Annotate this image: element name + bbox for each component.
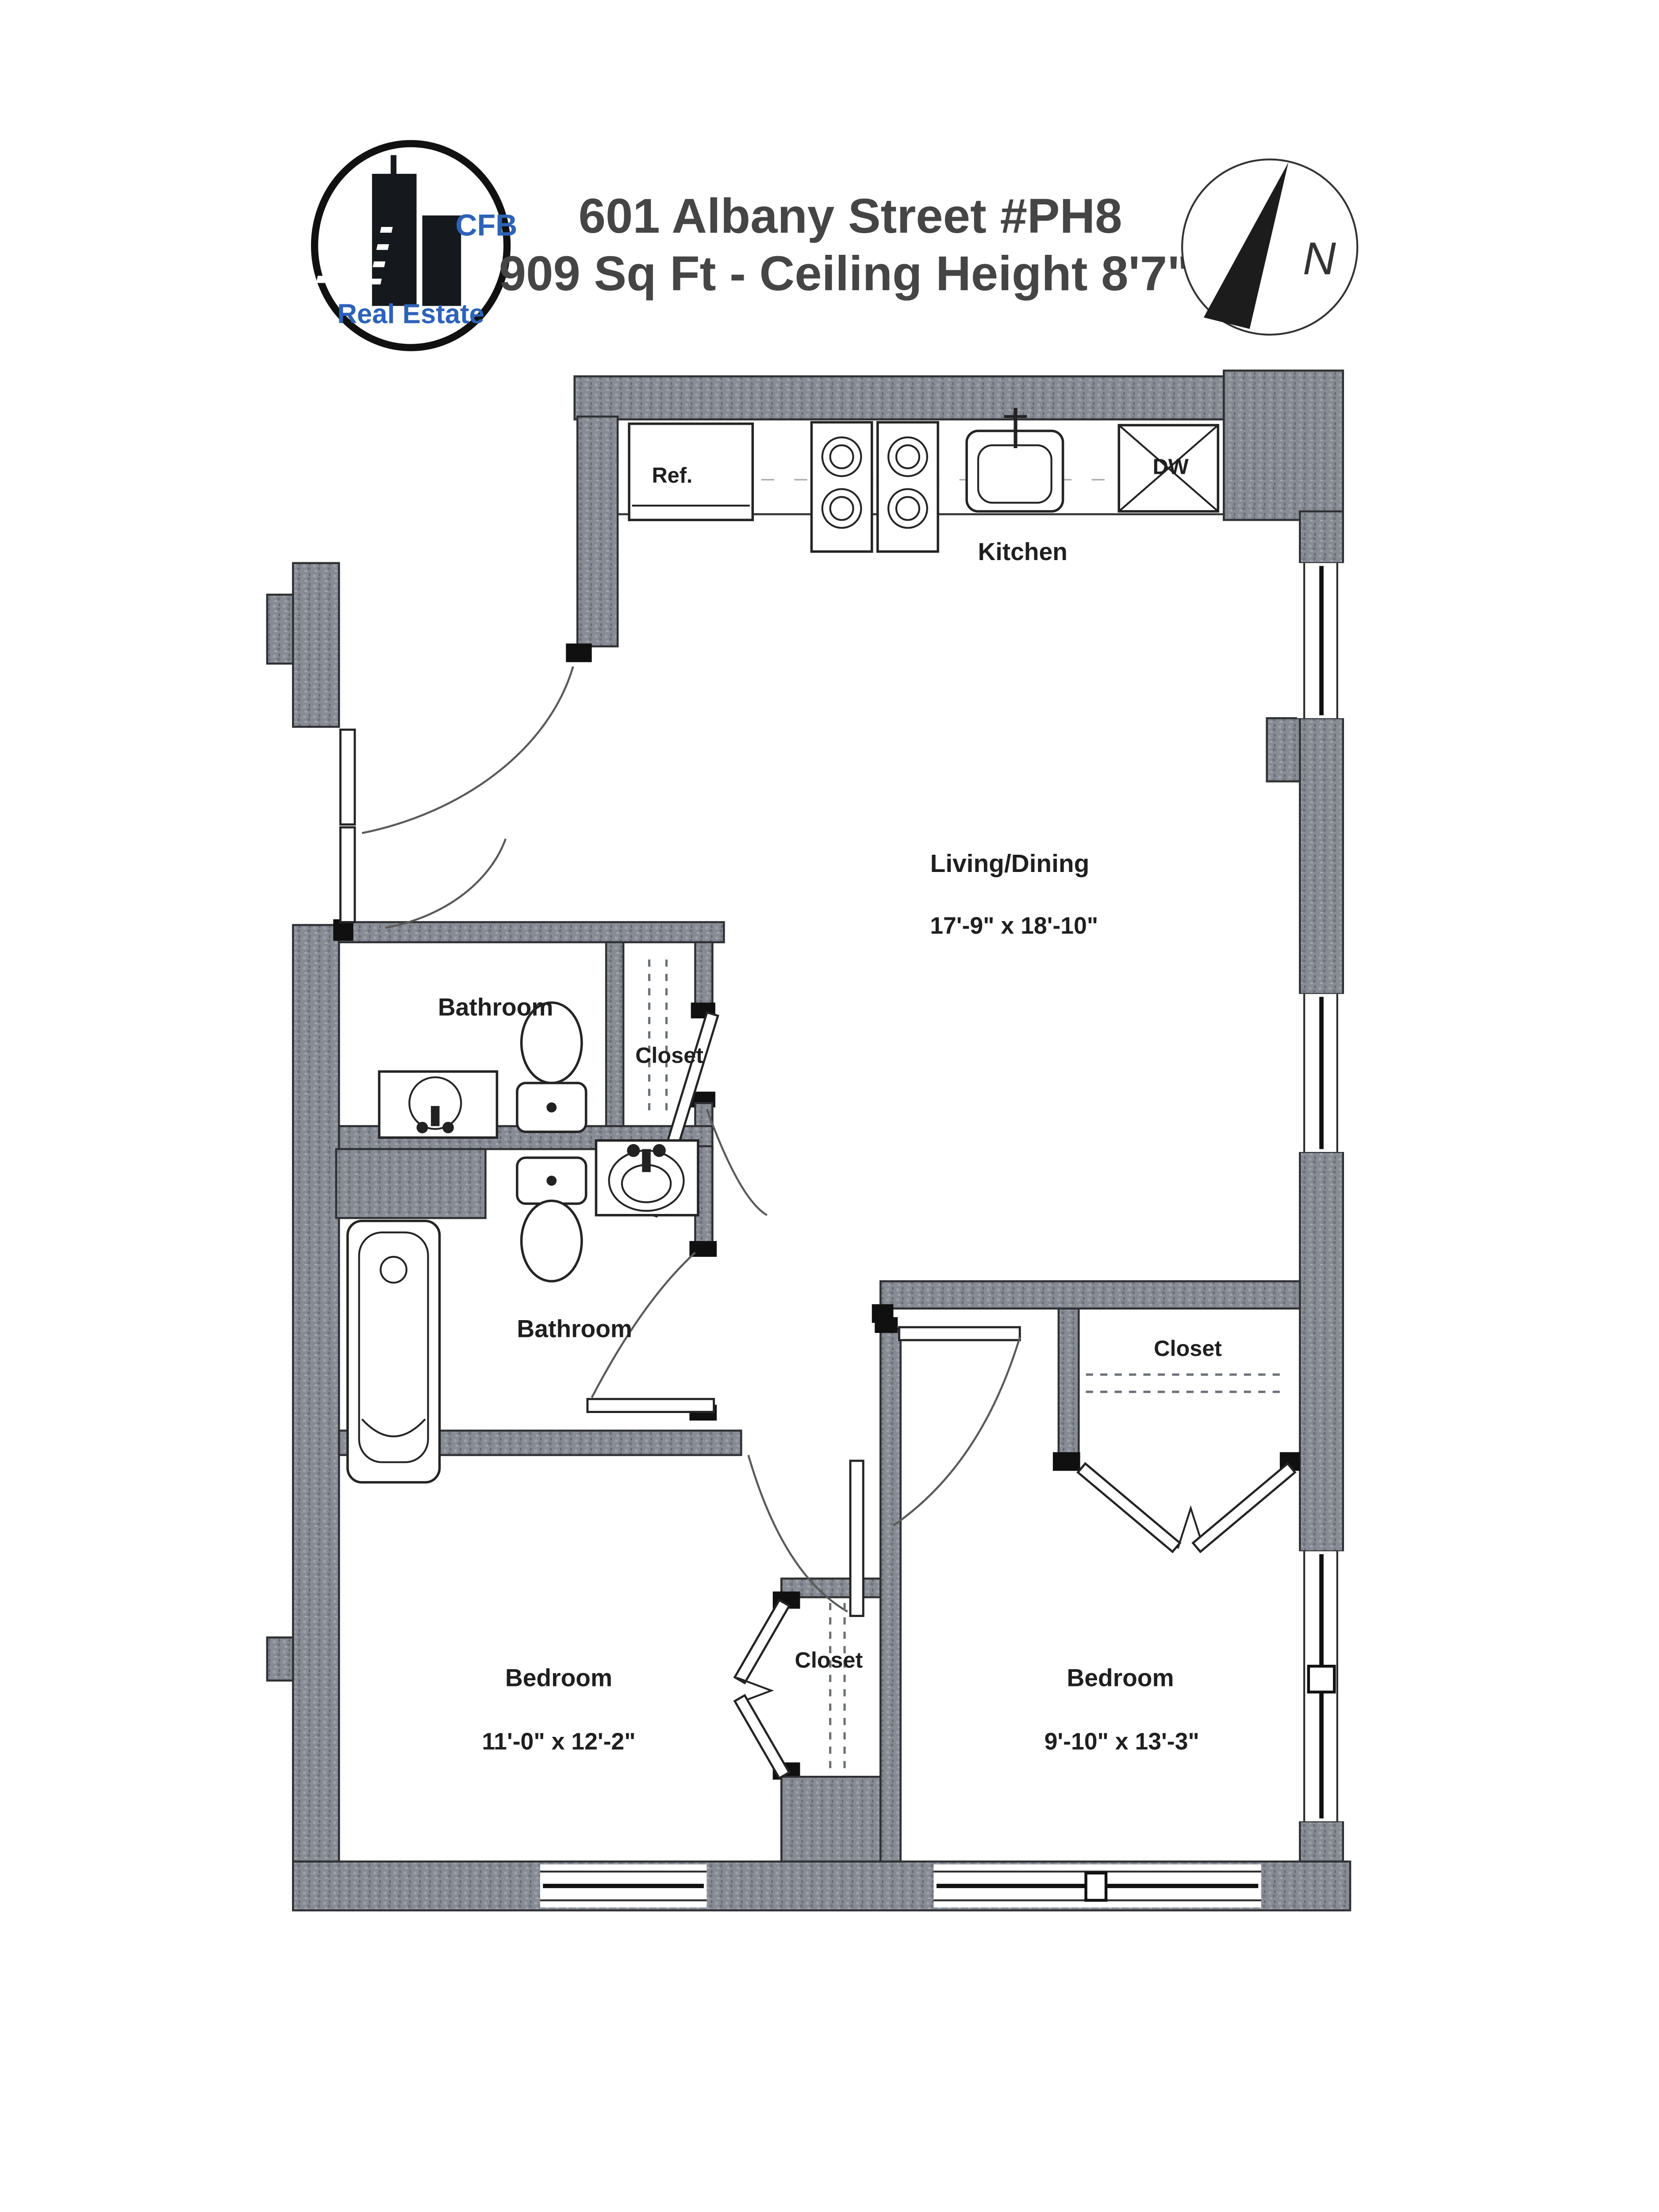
closet-bedroom2-label: Closet <box>1154 1336 1222 1361</box>
floor-plan-page: CFB Real Estate 601 Albany Street #PH8 9… <box>0 0 1659 2212</box>
bath1-toilet <box>517 1002 586 1132</box>
jamb-kitchen <box>566 644 591 662</box>
entry-doors <box>340 666 573 928</box>
wall-right-1 <box>1300 511 1343 563</box>
wall-living-bedroom2-divider <box>880 1281 1300 1309</box>
bath2-vanity-sink <box>596 1141 698 1215</box>
doors <box>340 666 1295 1778</box>
wall-left-main <box>293 925 339 1862</box>
floor-plan-canvas: CFB Real Estate 601 Albany Street #PH8 9… <box>0 0 1659 2212</box>
wall-hall-bedroom2 <box>880 1329 900 1862</box>
wall-closet-hall-right-top <box>695 942 712 1011</box>
north-compass-icon: N <box>1182 159 1357 334</box>
bedroom2-door <box>893 1327 1020 1525</box>
kitchen-label: Kitchen <box>978 538 1068 565</box>
ref-label: Ref. <box>652 464 692 488</box>
wall-closet-bedroom1-bottom-block <box>781 1777 880 1862</box>
bathroom2-label: Bathroom <box>517 1315 632 1343</box>
wall-kitchen-left <box>577 417 618 646</box>
bedroom1-label: Bedroom <box>505 1664 612 1692</box>
logo-realestate-text: Real Estate <box>337 299 484 330</box>
wall-left-pilaster <box>267 595 293 664</box>
closet-bedroom1-bifold <box>735 1600 789 1778</box>
wall-right-3 <box>1300 1152 1343 1551</box>
interior-walls <box>333 417 1300 1862</box>
bathroom1-label: Bathroom <box>438 993 553 1021</box>
stove <box>811 422 938 552</box>
dw-label: DW <box>1153 455 1189 479</box>
logo-cfb-text: CFB <box>455 208 517 242</box>
window-bottom-bedroom2 <box>933 1864 1261 1907</box>
wall-right-pier <box>1267 718 1300 781</box>
bedroom2-dims: 9'-10" x 13'-3" <box>1045 1729 1199 1755</box>
wall-left-top <box>293 563 339 727</box>
closet-bedroom2-bifold <box>1078 1463 1295 1551</box>
wall-kitchen-top <box>575 376 1247 419</box>
kitchen-sink <box>967 408 1063 511</box>
living-dining-label: Living/Dining <box>930 850 1090 878</box>
bath2-toilet <box>517 1158 586 1281</box>
bedroom2-label: Bedroom <box>1067 1664 1174 1692</box>
window-right-1 <box>1297 563 1346 718</box>
compass-n-label: N <box>1303 233 1336 284</box>
header: CFB Real Estate 601 Albany Street #PH8 9… <box>315 144 1357 348</box>
jamb-bedroom2-door <box>875 1317 898 1333</box>
window-bottom-bedroom1 <box>540 1864 707 1907</box>
closet-hatching <box>649 960 1283 1773</box>
wall-left-bump <box>267 1637 293 1680</box>
page-title-address: 601 Albany Street #PH8 <box>579 189 1122 243</box>
jamb-closet-bed2-left <box>1053 1452 1080 1471</box>
page-title-details: 909 Sq Ft - Ceiling Height 8'7" <box>499 246 1190 301</box>
wall-bath1-closet-divider <box>606 942 623 1126</box>
bath1-vanity-sink <box>379 1071 497 1137</box>
closet-hall-label: Closet <box>635 1043 703 1068</box>
kitchen-fixtures: Ref. DW <box>618 408 1224 552</box>
bathtub <box>348 1221 440 1482</box>
window-right-2 <box>1297 994 1346 1152</box>
cfb-logo: CFB Real Estate <box>315 144 517 348</box>
bedroom1-dims: 11'-0" x 12'-2" <box>482 1729 635 1755</box>
closet-bedroom1-label: Closet <box>795 1647 863 1672</box>
refrigerator: Ref. <box>629 424 753 520</box>
windows <box>540 563 1346 1908</box>
window-mullion-block-2 <box>1086 1873 1106 1901</box>
wall-plumbing-block <box>336 1149 486 1218</box>
wall-top-right-block <box>1224 371 1343 520</box>
bathroom1-fixtures <box>379 1002 586 1137</box>
living-dining-dims: 17'-9" x 18'-10" <box>930 913 1098 939</box>
wall-closet-bedroom2-left <box>1059 1309 1079 1461</box>
dishwasher: DW <box>1119 425 1218 511</box>
window-mullion-block <box>1309 1666 1334 1692</box>
window-right-3 <box>1297 1551 1346 1821</box>
wall-right-2 <box>1300 718 1343 994</box>
